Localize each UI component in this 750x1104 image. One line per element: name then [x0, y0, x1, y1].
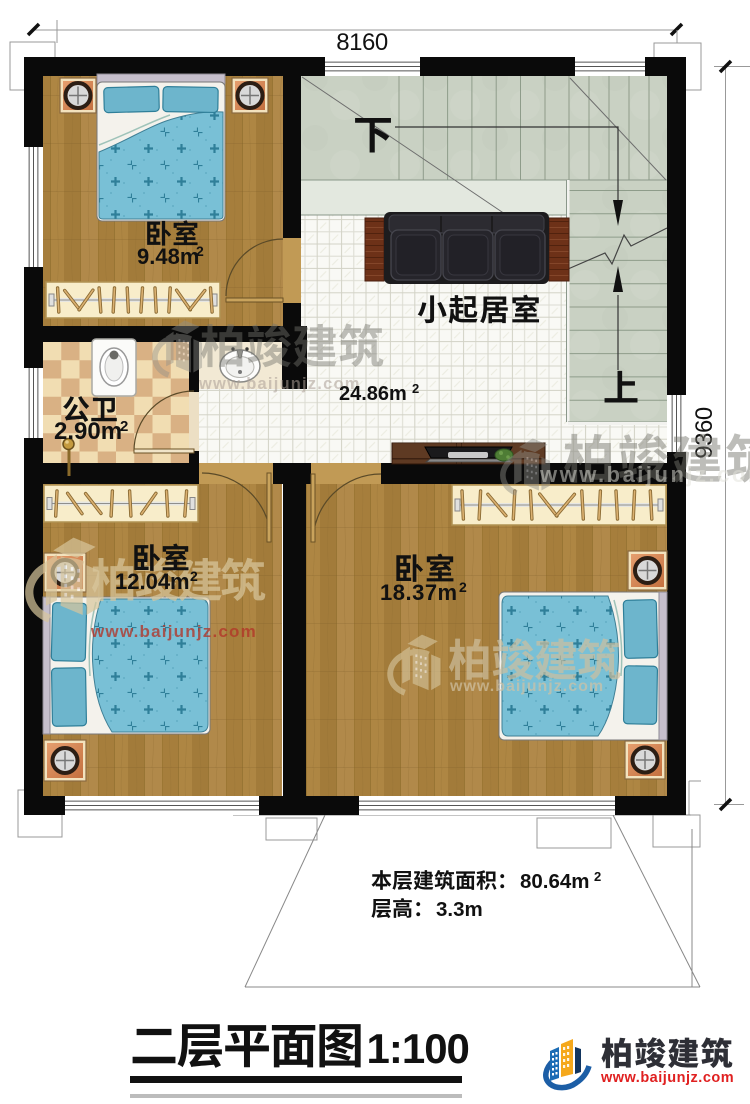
svg-text:www.baijunjz.com: www.baijunjz.com [539, 462, 750, 487]
svg-text:2: 2 [594, 869, 601, 884]
svg-text:8160: 8160 [336, 29, 388, 56]
svg-text:80.64m: 80.64m [520, 870, 590, 893]
svg-text:12.04m: 12.04m [115, 569, 190, 594]
svg-text:24.86m: 24.86m [339, 383, 407, 405]
svg-text:18.37m: 18.37m [380, 580, 458, 605]
svg-text:2: 2 [412, 381, 419, 396]
svg-text:2.90m: 2.90m [54, 418, 122, 445]
svg-text:www.baijunjz.com: www.baijunjz.com [198, 375, 361, 393]
svg-text:2: 2 [190, 568, 198, 584]
svg-text:2: 2 [459, 579, 467, 595]
svg-text:2: 2 [196, 243, 204, 259]
svg-text:3.3m: 3.3m [436, 898, 483, 921]
svg-text:9.48m: 9.48m [137, 244, 199, 269]
svg-text:1:100: 1:100 [367, 1025, 469, 1072]
svg-text:www.baijunjz.com: www.baijunjz.com [90, 622, 257, 641]
svg-text:www.baijunjz.com: www.baijunjz.com [600, 1070, 734, 1086]
svg-text:2: 2 [120, 418, 128, 435]
svg-text:www.baijunjz.com: www.baijunjz.com [449, 678, 604, 695]
